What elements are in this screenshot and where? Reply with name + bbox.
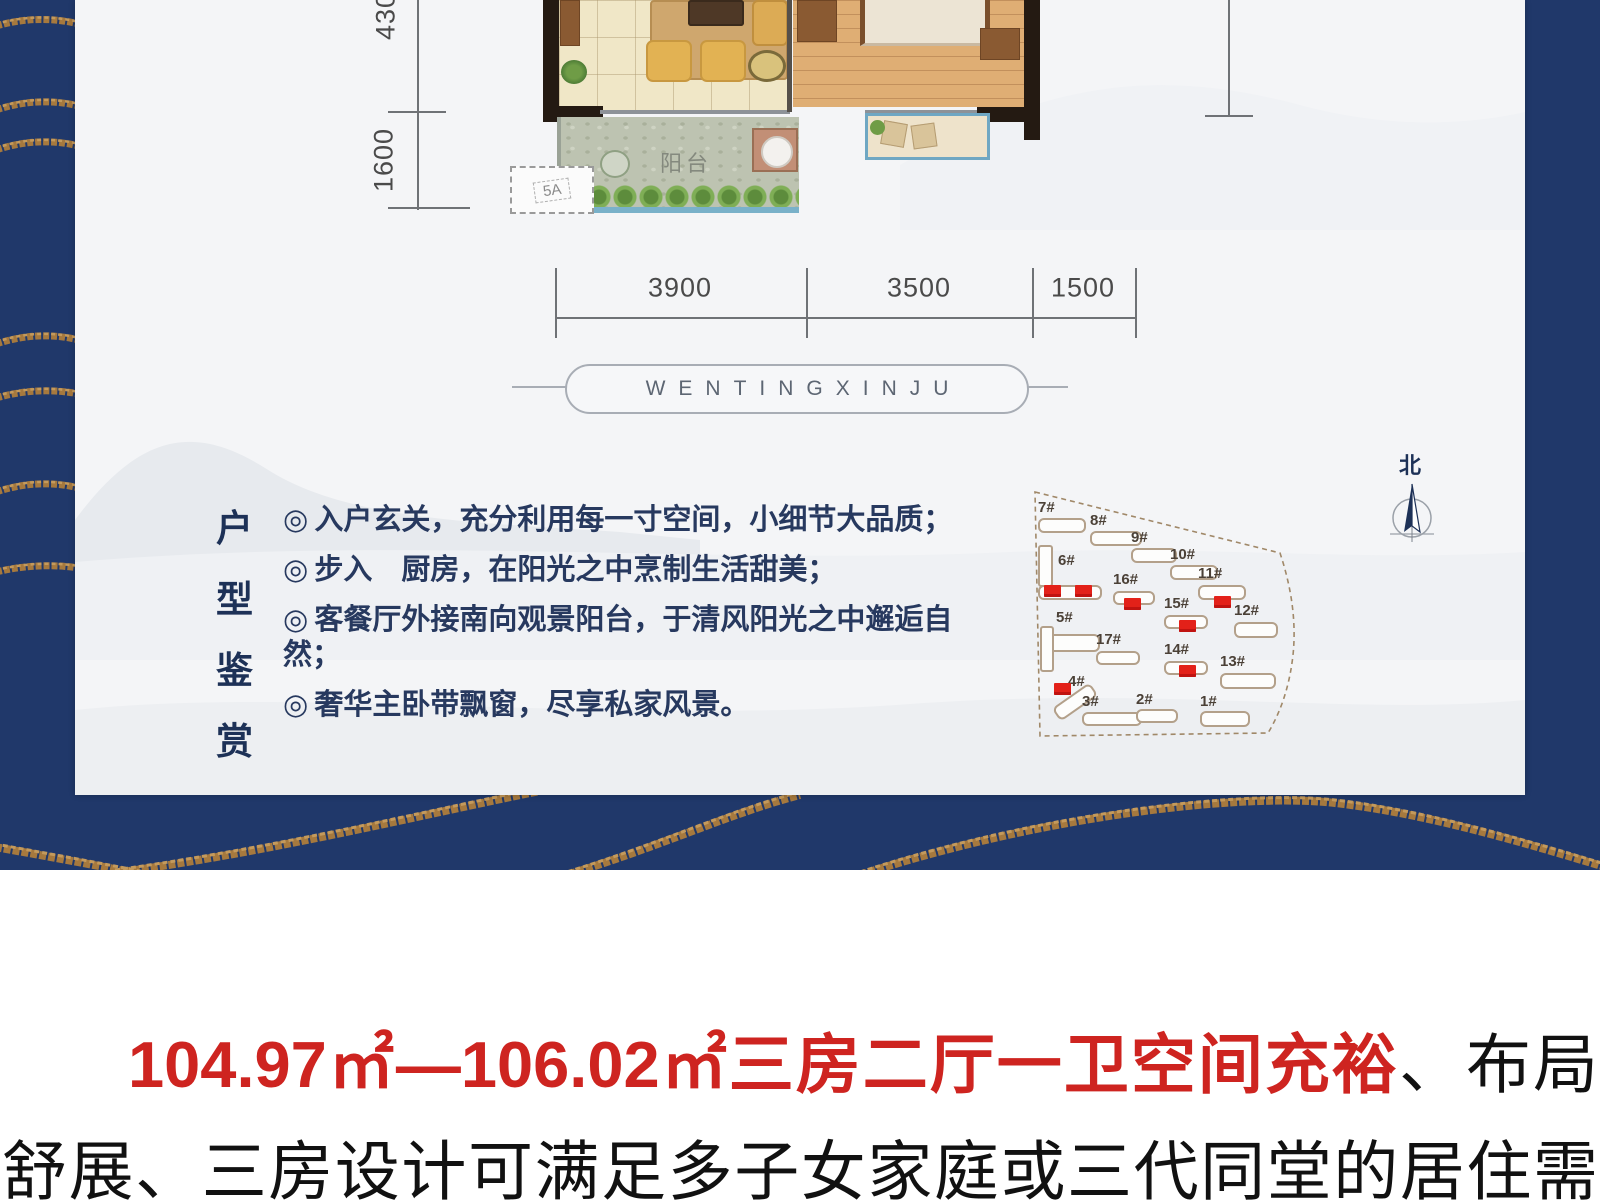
dim-right-vline (1228, 0, 1230, 116)
gold-rope-bottom-decor (0, 795, 1600, 870)
bullet-marker-icon: ◎ (283, 604, 308, 636)
plant-living (561, 60, 587, 84)
room-divider-wall (787, 0, 792, 112)
dim-left-upper-label: 4300 (371, 0, 402, 40)
dim-left-vline (417, 0, 419, 210)
headline-area-text: 104.97㎡—106.02㎡三房二厅一卫空间充裕 (128, 1028, 1399, 1101)
bullet-item: ◎步入 厨房，在阳光之中烹制生活甜美； (283, 553, 983, 588)
appreciation-bullets: ◎入户玄关，充分利用每一寸空间，小细节大品质；◎步入 厨房，在阳光之中烹制生活甜… (283, 503, 983, 723)
dim-tick-2 (806, 268, 808, 338)
dim-tick-4 (1135, 268, 1137, 338)
balcony-door-frame (600, 110, 790, 114)
balcony-glass-rail (559, 207, 799, 213)
balcony-label: 阳台 (660, 146, 712, 178)
dim-right-tick (1205, 115, 1253, 117)
coffee-table (688, 0, 744, 26)
dim-bottom-hline (555, 317, 1135, 319)
project-banner: WENTINGXINJU (565, 364, 1029, 414)
site-map-boundary (1020, 485, 1310, 745)
bullet-item: ◎入户玄关，充分利用每一寸空间，小细节大品质； (283, 503, 983, 538)
dim-left-lower-label: 1600 (369, 128, 400, 192)
banner-line-left (512, 386, 568, 388)
gold-rope-left-decor (0, 0, 75, 870)
title-char: 赏 (216, 711, 253, 765)
dim-left-tick-bot (388, 207, 470, 209)
tv-cabinet (560, 0, 580, 46)
flyer-page: 阳台 5A 4300 1600 2900 (0, 0, 1600, 1200)
bullet-marker-icon: ◎ (283, 554, 308, 586)
armchair-left (646, 40, 692, 82)
dim-3500-label: 3500 (887, 273, 951, 304)
title-char: 鉴 (216, 640, 253, 694)
dim-left-tick-mid (388, 111, 446, 113)
sofa-section (752, 0, 788, 46)
bullet-text: 客餐厅外接南向观景阳台，于清风阳光之中邂逅自然； (283, 604, 952, 671)
ac-platform-label: 5A (533, 177, 572, 203)
bedroom-desk (797, 0, 837, 42)
project-banner-text: WENTINGXINJU (646, 377, 962, 401)
wall-left (543, 0, 559, 118)
dim-1500-label: 1500 (1051, 273, 1115, 304)
balcony-table-set (600, 150, 630, 178)
bullet-marker-icon: ◎ (283, 689, 308, 721)
bullet-item: ◎客餐厅外接南向观景阳台，于清风阳光之中邂逅自然； (283, 603, 983, 673)
bed-partial (860, 0, 990, 46)
compass-icon (1388, 482, 1436, 544)
bullet-text: 奢华主卧带飘窗，尽享私家风景。 (314, 689, 749, 721)
ac-platform-box: 5A (510, 166, 594, 214)
bullet-text: 入户玄关，充分利用每一寸空间，小细节大品质； (314, 504, 952, 536)
dim-tick-3 (1032, 268, 1034, 338)
bullet-marker-icon: ◎ (283, 504, 308, 536)
headline-paragraph: 104.97㎡—106.02㎡三房二厅一卫空间充裕、布局舒展、三房设计可满足多子… (0, 1011, 1600, 1200)
balcony-basin (752, 128, 798, 172)
round-side-table (748, 50, 786, 82)
bedroom-dresser (980, 28, 1020, 60)
content-panel: 阳台 5A 4300 1600 2900 (75, 0, 1525, 795)
wall-right (1024, 0, 1040, 140)
appreciation-title: 户型鉴赏 (216, 498, 253, 765)
bullet-item: ◎奢华主卧带飘窗，尽享私家风景。 (283, 688, 983, 723)
dim-3900-label: 3900 (648, 273, 712, 304)
title-char: 型 (216, 569, 253, 623)
north-label: 北 (1399, 448, 1421, 480)
balcony-plants (561, 183, 799, 209)
bullet-text: 步入 厨房，在阳光之中烹制生活甜美； (314, 554, 836, 586)
dim-tick-1 (555, 268, 557, 338)
title-char: 户 (216, 498, 253, 552)
bay-window (865, 113, 990, 160)
armchair-right (700, 40, 746, 82)
